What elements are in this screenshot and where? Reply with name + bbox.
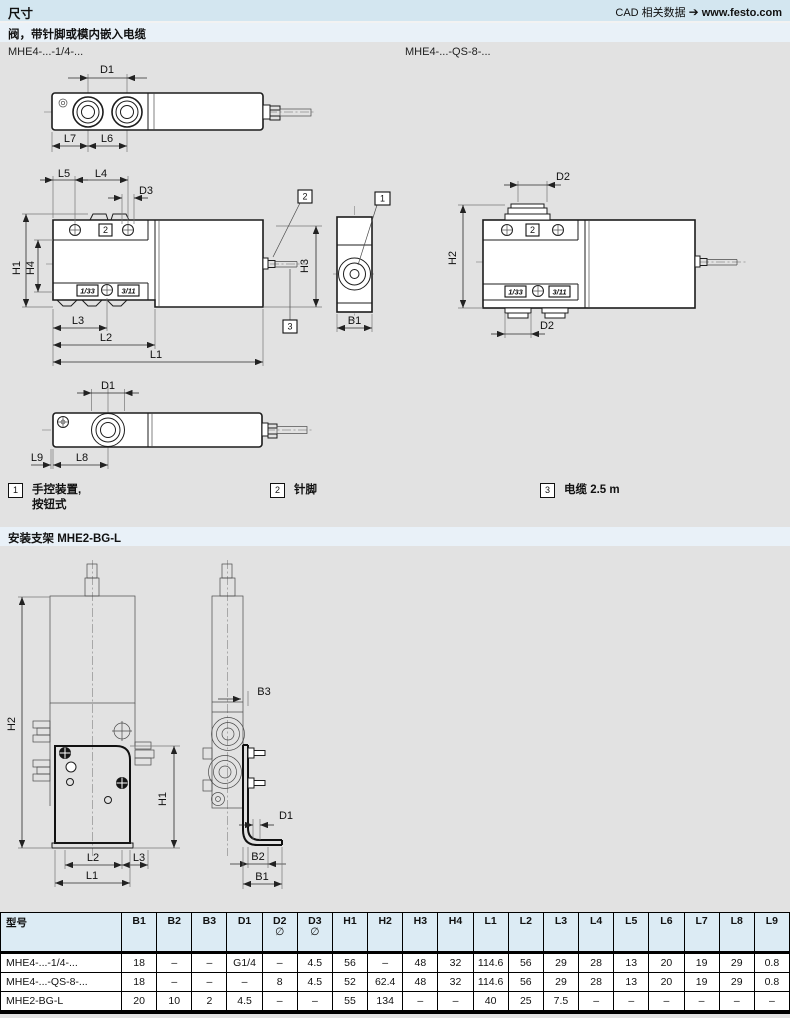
drawing-bracket-front: H2 H1 L2 L3 L1 [8, 556, 198, 908]
table-header-row: 型号 B1 B2 B3 D1 D2∅ D3∅ H1 H2 H3 H4 L1 L2… [1, 913, 790, 953]
svg-text:2: 2 [103, 225, 108, 235]
svg-text:3: 3 [287, 322, 292, 332]
cell: – [157, 953, 192, 973]
variant-label-quarter: MHE4-...-1/4-... [8, 46, 83, 58]
side-fitting-right [135, 742, 154, 765]
cell: 13 [614, 953, 649, 973]
catalog-page: 尺寸 CAD 相关数据➔www.festo.com 阀，带针脚或模内嵌入电缆 M… [0, 0, 790, 1018]
legend-ref-1: 1 [8, 483, 23, 498]
dim-l1: L1 [53, 309, 263, 366]
column-header-l3: L3 [543, 913, 578, 953]
cell: 20 [649, 973, 684, 992]
dim-label-l3: L3 [133, 852, 145, 864]
ref-2-inline: 2 [526, 224, 539, 236]
cell: 56 [508, 953, 543, 973]
dim-label-b3: B3 [257, 686, 270, 698]
cell: 28 [579, 953, 614, 973]
dim-label-l5: L5 [58, 168, 70, 180]
cable-connector [262, 423, 307, 438]
model-cell: MHE4-...-1/4-... [1, 953, 122, 973]
cell: 29 [719, 973, 754, 992]
dim-l4: L4 [75, 168, 128, 224]
drawing-bottom-view: D1 L9 L8 [18, 376, 318, 472]
svg-text:1/33: 1/33 [80, 287, 95, 296]
drawing-bracket-side: B3 D1 B2 B1 [193, 556, 335, 908]
bolt-upper [248, 748, 265, 758]
cable-connector [263, 258, 297, 269]
cell: 18 [122, 973, 157, 992]
dim-l7: L7 [52, 132, 88, 152]
screw-top-right [552, 224, 564, 236]
svg-text:1/33: 1/33 [508, 288, 523, 297]
dim-d1: D1 [68, 64, 147, 78]
cell: – [438, 992, 473, 1013]
manual-override-cap [90, 214, 108, 220]
dim-l5: L5 [40, 168, 88, 224]
qs-fitting-top [505, 204, 550, 220]
section-bracket-title: 安装支架 MHE2-BG-L [8, 530, 121, 546]
dim-l8: L8 [53, 449, 108, 469]
column-header-h2: H2 [368, 913, 403, 953]
cell: – [368, 953, 403, 973]
dim-label-h2: H2 [447, 251, 459, 265]
legend-ref-2: 2 [270, 483, 285, 498]
cell: 32 [438, 953, 473, 973]
cell: 52 [332, 973, 367, 992]
svg-text:3/11: 3/11 [552, 288, 566, 297]
legend-item-1: 1手控装置,按钮式 [8, 483, 81, 513]
bolt-lower [248, 778, 265, 788]
dim-label-l7: L7 [64, 133, 76, 145]
table-row: MHE4-...-QS-8-... 18 – – – 8 4.5 52 62.4… [1, 973, 790, 992]
cell: – [579, 992, 614, 1013]
bracket-plate-profile [243, 745, 282, 845]
cell: 13 [614, 973, 649, 992]
cell: 56 [508, 973, 543, 992]
ref-3-callout: 3 [283, 269, 297, 333]
pilot-hole [112, 721, 132, 741]
cell: 29 [543, 973, 578, 992]
screw-top-left [501, 224, 513, 236]
dim-l2: L2 [53, 309, 155, 349]
dim-label-d1: D1 [100, 64, 114, 76]
cell: – [262, 992, 297, 1013]
dim-label-l1: L1 [86, 870, 98, 882]
festo-website-link[interactable]: www.festo.com [702, 7, 782, 19]
cell: 29 [543, 953, 578, 973]
drawing-end-view: 1 B1 [330, 186, 396, 338]
model-cell: MHE2-BG-L [1, 992, 122, 1013]
cell: – [262, 953, 297, 973]
dim-b2: B2 [230, 847, 286, 868]
qs-fitting-bottom-right [542, 308, 568, 318]
cell: 114.6 [473, 953, 508, 973]
dim-label-l8: L8 [76, 452, 88, 464]
column-header-b3: B3 [192, 913, 227, 953]
column-header-h1: H1 [332, 913, 367, 953]
dim-label-l3: L3 [72, 315, 84, 327]
cable-connector [695, 256, 737, 267]
column-header-model: 型号 [1, 913, 122, 953]
cell: – [684, 992, 719, 1013]
column-header-l9: L9 [754, 913, 789, 953]
port-label-133: 1/33 [505, 286, 526, 297]
cell: 2 [192, 992, 227, 1013]
cell: 4.5 [297, 953, 332, 973]
column-header-b2: B2 [157, 913, 192, 953]
cell: 0.8 [754, 973, 789, 992]
cell: 40 [473, 992, 508, 1013]
cell: – [297, 992, 332, 1013]
dim-label-h3: H3 [299, 259, 311, 273]
dim-h4: H4 [25, 240, 53, 292]
dim-label-b2: B2 [251, 851, 264, 863]
dim-d3: D3 [108, 185, 153, 224]
cable-connector [263, 105, 311, 120]
dim-l2: L2 [65, 850, 122, 869]
column-header-d1: D1 [227, 913, 262, 953]
dim-h1: H1 [130, 746, 180, 848]
cell: 10 [157, 992, 192, 1013]
column-header-b1: B1 [122, 913, 157, 953]
dim-b3: B3 [218, 686, 271, 706]
cell: 4.5 [227, 992, 262, 1013]
cell: 0.8 [754, 953, 789, 973]
festo-arrow-icon: ➔ [686, 5, 702, 19]
column-header-l5: L5 [614, 913, 649, 953]
variant-label-qs8: MHE4-...-QS-8-... [405, 46, 491, 58]
dim-label-l9: L9 [31, 452, 43, 464]
port-label-311: 3/11 [549, 286, 570, 297]
side-fitting-upper [33, 721, 50, 742]
model-cell: MHE4-...-QS-8-... [1, 973, 122, 992]
cell: – [192, 973, 227, 992]
cell: 114.6 [473, 973, 508, 992]
drawing-top-view: D1 L7 L6 [20, 60, 320, 172]
svg-text:3/11: 3/11 [121, 287, 135, 296]
svg-text:2: 2 [302, 192, 307, 202]
screw-top-left [69, 224, 81, 236]
dim-label-l2: L2 [87, 852, 99, 864]
table-row: MHE2-BG-L 20 10 2 4.5 – – 55 134 – – 40 … [1, 992, 790, 1013]
dim-l6: L6 [88, 133, 127, 146]
dim-label-b1: B1 [255, 871, 268, 883]
diameter-symbol: ∅ [300, 927, 330, 938]
dim-label-h1: H1 [157, 792, 169, 806]
section-valve-band: 阀，带针脚或模内嵌入电缆 [0, 23, 790, 42]
dim-label-d3: D3 [139, 185, 153, 197]
cell: G1/4 [227, 953, 262, 973]
dim-label-d1: D1 [279, 810, 293, 822]
screw-bottom [101, 284, 113, 296]
cell: 20 [649, 953, 684, 973]
drawing-front-view: 2 1/33 3/11 H1 H4 L5 [10, 168, 340, 374]
cell: 134 [368, 992, 403, 1013]
port-funnels [57, 300, 127, 306]
cell: 8 [262, 973, 297, 992]
cell: 28 [579, 973, 614, 992]
cell: – [649, 992, 684, 1013]
screw-top-right [122, 224, 134, 236]
section-bracket-band: 安装支架 MHE2-BG-L [0, 527, 790, 546]
ref-2-inline: 2 [99, 224, 112, 236]
dim-label-d2-bottom: D2 [540, 320, 554, 332]
column-header-l6: L6 [649, 913, 684, 953]
column-header-l1: L1 [473, 913, 508, 953]
column-header-h3: H3 [403, 913, 438, 953]
dim-label-l6: L6 [101, 133, 113, 145]
cad-label: CAD 相关数据 [615, 7, 685, 19]
cell: 20 [122, 992, 157, 1013]
diameter-symbol: ∅ [265, 927, 295, 938]
dim-h3: H3 [263, 226, 322, 307]
cell: – [157, 973, 192, 992]
valve-body-outline [53, 413, 262, 447]
cell: 29 [719, 953, 754, 973]
cell: 55 [332, 992, 367, 1013]
page-header-band: 尺寸 CAD 相关数据➔www.festo.com [0, 0, 790, 23]
cell: – [754, 992, 789, 1013]
svg-text:2: 2 [530, 225, 535, 235]
side-fitting-lower [33, 760, 50, 781]
dim-label-l4: L4 [95, 168, 107, 180]
cell: 19 [684, 953, 719, 973]
cell: 56 [332, 953, 367, 973]
dim-label-h1: H1 [11, 261, 23, 275]
dim-label-l1: L1 [150, 349, 162, 361]
cad-data-note: CAD 相关数据➔www.festo.com [615, 4, 782, 20]
cell: – [192, 953, 227, 973]
dim-l9: L9 [31, 449, 51, 469]
dim-label-h4: H4 [25, 261, 37, 275]
mounting-screws [59, 747, 128, 804]
legend-ref-3: 3 [540, 483, 555, 498]
dim-l3: L3 [122, 850, 148, 869]
legend-item-2: 2针脚 [270, 483, 317, 498]
cell: – [719, 992, 754, 1013]
dimensions-table: 型号 B1 B2 B3 D1 D2∅ D3∅ H1 H2 H3 H4 L1 L2… [0, 912, 790, 1014]
valve-outline-thin [203, 564, 245, 808]
port-label-311: 3/11 [118, 285, 139, 296]
cell: 18 [122, 953, 157, 973]
cell: 48 [403, 953, 438, 973]
cell: 25 [508, 992, 543, 1013]
legend-item-3: 3电缆 2.5 m [540, 483, 620, 498]
dim-label-h2: H2 [6, 717, 18, 731]
section-valve-title: 阀，带针脚或模内嵌入电缆 [8, 26, 146, 42]
cell: 32 [438, 973, 473, 992]
cell: 62.4 [368, 973, 403, 992]
column-header-l2: L2 [508, 913, 543, 953]
cell: 7.5 [543, 992, 578, 1013]
cell: 19 [684, 973, 719, 992]
drawing-qs-view: 2 1/33 3/11 D2 [450, 166, 780, 366]
qs-fitting-bottom-left [505, 308, 531, 318]
cell: – [614, 992, 649, 1013]
column-header-d3: D3∅ [297, 913, 332, 953]
cell: 48 [403, 973, 438, 992]
valve-body-outline [52, 93, 263, 130]
svg-text:1: 1 [380, 194, 385, 204]
cell: – [403, 992, 438, 1013]
screw-bottom [532, 285, 544, 297]
column-header-d2: D2∅ [262, 913, 297, 953]
ref-2-callout: 2 [273, 190, 312, 257]
column-header-l7: L7 [684, 913, 719, 953]
dim-b1: B1 [337, 314, 372, 332]
dim-label-d2-top: D2 [556, 171, 570, 183]
cell: – [227, 973, 262, 992]
dim-label-b1: B1 [348, 315, 361, 327]
column-header-h4: H4 [438, 913, 473, 953]
dim-label-l2: L2 [100, 332, 112, 344]
column-header-l8: L8 [719, 913, 754, 953]
screw-hole [58, 417, 69, 428]
table-row: MHE4-...-1/4-... 18 – – G1/4 – 4.5 56 – … [1, 953, 790, 973]
port-label-133: 1/33 [77, 285, 98, 296]
page-title: 尺寸 [8, 3, 33, 22]
column-header-l4: L4 [579, 913, 614, 953]
dim-d2-top: D2 [504, 171, 570, 202]
dim-h2: H2 [6, 597, 52, 848]
dim-label-d1: D1 [101, 380, 115, 392]
cell: 4.5 [297, 973, 332, 992]
